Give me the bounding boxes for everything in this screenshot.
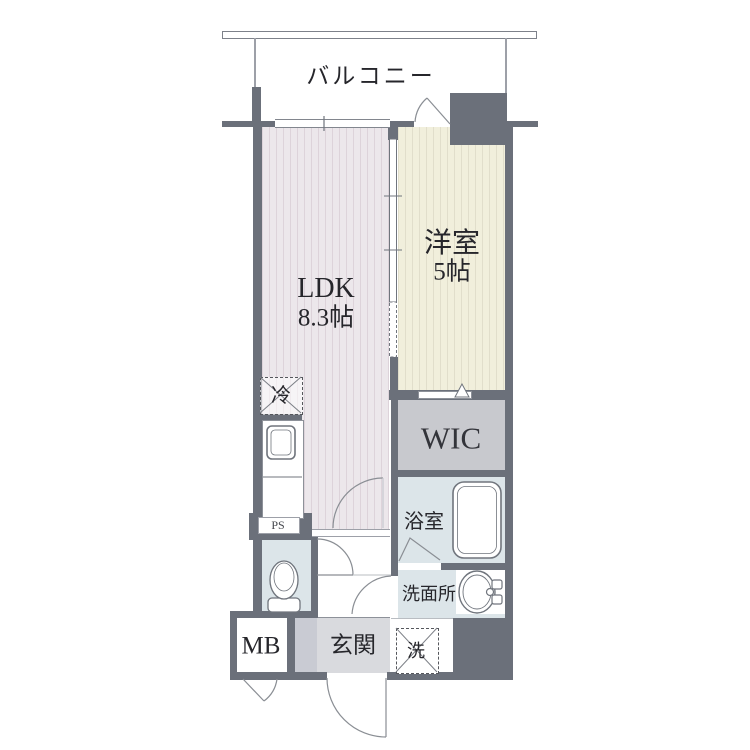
western-room-label: 洋室 [424,230,480,258]
meter-box-label: MB [242,634,281,659]
bath-folding-door-icon [399,538,440,561]
floor-plan: バルコニー LDK 8.3帖 洋室 5帖 WIC 浴室 洗面所 洗 玄関 MB … [0,0,750,750]
ldk-size-label: 8.3帖 [298,306,354,331]
washbasin-faucet-top [492,580,502,589]
washroom-door-arc [352,576,391,614]
washbasin-faucet-bottom [492,595,502,604]
mb-door-arc [264,679,277,701]
laundry-label: 洗 [407,642,425,660]
toilet-door-arc [317,539,353,575]
ldk-label: LDK [297,275,355,303]
pipe-space-label: PS [271,519,284,531]
bathroom-label: 浴室 [404,512,444,532]
entrance-door-arc [327,678,386,737]
bathtub-icon [453,482,501,558]
sliding-door-panel [390,139,397,302]
wic-label: WIC [421,423,481,454]
closet-door-marker-icon [455,384,469,397]
refrigerator-label: 冷 [271,386,291,406]
sliding-door-pocket [390,302,397,357]
toilet-tank [268,598,300,612]
mb-door-leaf [243,679,264,701]
entrance-label: 玄関 [330,634,376,657]
western-room-size-label: 5帖 [433,260,471,285]
ldk-door-arc [333,478,383,528]
balcony-door-leaf [427,98,450,124]
balcony-door-arc [415,98,427,122]
balcony-label: バルコニー [306,65,436,88]
washbasin-knob [487,589,494,596]
washroom-label: 洗面所 [402,585,456,603]
